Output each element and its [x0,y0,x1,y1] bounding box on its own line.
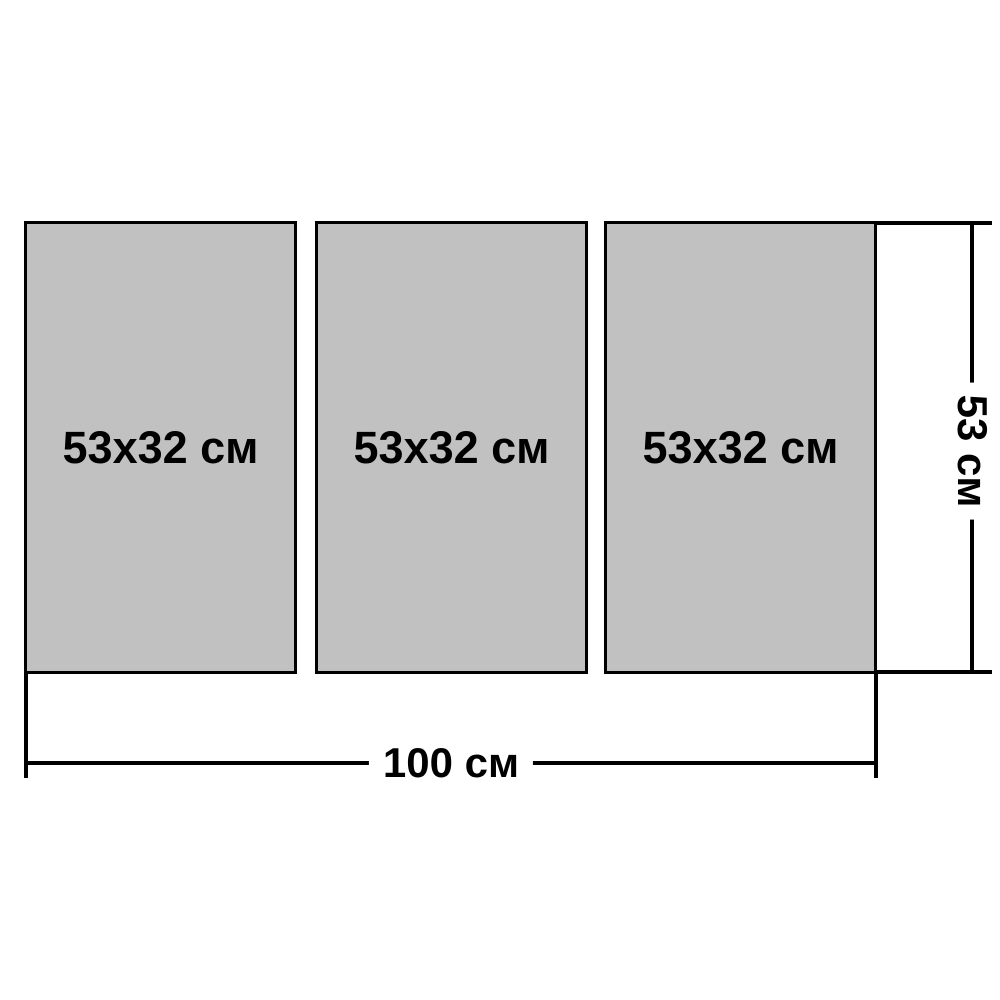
panel-right: 53x32 см [604,221,877,674]
total-height-label: 53 см [949,383,995,520]
extension-line-right-lower [877,670,992,674]
extension-line-top-right [877,221,992,225]
panel-center: 53x32 см [315,221,588,674]
panel-left: 53x32 см [24,221,297,674]
panel-right-size-label: 53x32 см [643,422,839,474]
panel-left-size-label: 53x32 см [63,422,259,474]
total-width-label: 100 см [369,740,533,786]
canvas-size-diagram: 53x32 см 53x32 см 53x32 см 100 см 53 см [0,0,1000,1000]
panel-center-size-label: 53x32 см [354,422,550,474]
